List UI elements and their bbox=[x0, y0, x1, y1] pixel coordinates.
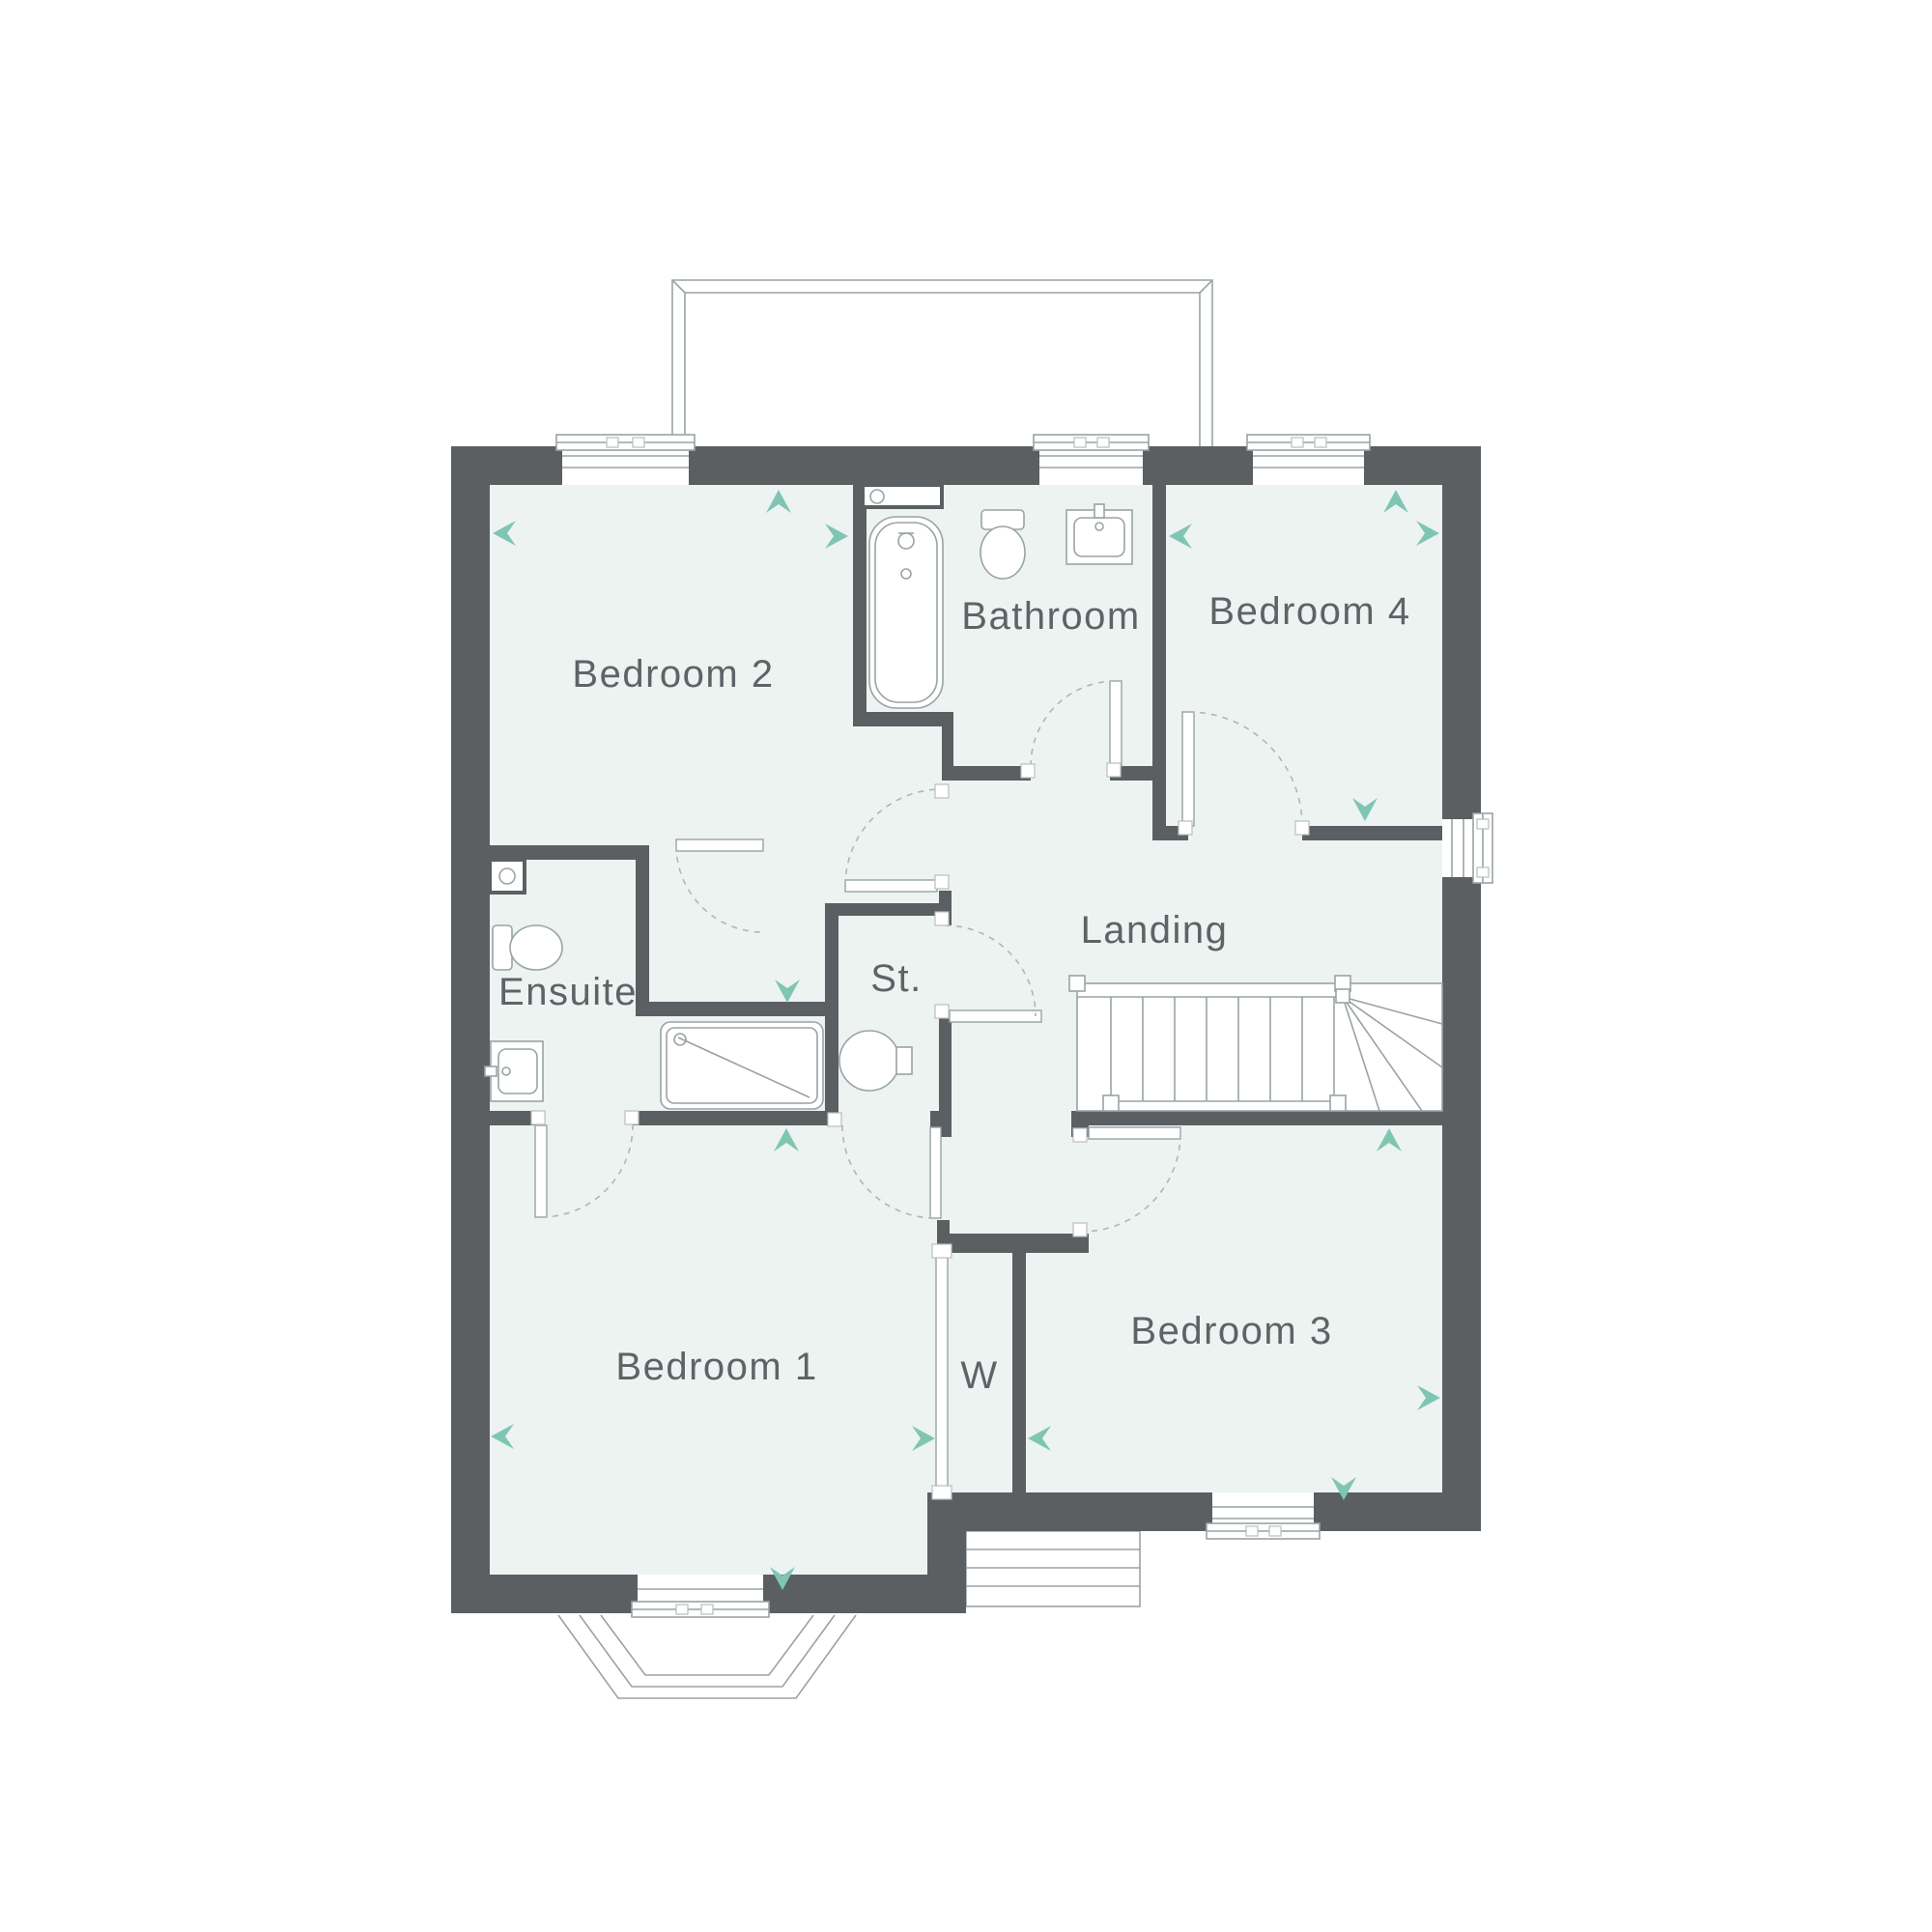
ensuite-sink-icon bbox=[485, 1041, 543, 1101]
room-label-bedroom2: Bedroom 2 bbox=[572, 653, 774, 696]
staircase bbox=[1069, 976, 1442, 1111]
floor-plan: Bedroom 2 Bathroom Bedroom 4 Ensuite St.… bbox=[0, 0, 1932, 1932]
room-label-bathroom: Bathroom bbox=[961, 595, 1140, 638]
room-label-bedroom3: Bedroom 3 bbox=[1130, 1310, 1332, 1352]
window-landing-right bbox=[1442, 813, 1492, 883]
bathroom-boxing bbox=[863, 485, 942, 507]
room-label-landing: Landing bbox=[1081, 909, 1229, 952]
room-label-storage: St. bbox=[870, 957, 922, 1000]
window-bedroom3-bottom bbox=[1207, 1492, 1320, 1539]
bay-window bbox=[558, 1615, 856, 1698]
bathroom-toilet-icon bbox=[980, 510, 1025, 579]
window-bedroom1-bottom bbox=[632, 1575, 769, 1617]
bathroom-sink-icon bbox=[1066, 504, 1132, 564]
floor-plan-svg: Bedroom 2 Bathroom Bedroom 4 Ensuite St.… bbox=[0, 0, 1932, 1932]
window-bathroom-top bbox=[1034, 435, 1149, 485]
bath-tub-icon bbox=[869, 517, 943, 708]
canopy-outline bbox=[672, 280, 1212, 446]
window-bedroom2-top bbox=[556, 435, 695, 485]
room-label-wardrobe: W bbox=[960, 1354, 998, 1397]
shower-tray-icon bbox=[661, 1022, 823, 1109]
window-bedroom4-top bbox=[1247, 435, 1370, 485]
room-label-bedroom1: Bedroom 1 bbox=[615, 1346, 817, 1388]
room-label-bedroom4: Bedroom 4 bbox=[1208, 590, 1410, 633]
room-label-ensuite: Ensuite bbox=[498, 971, 638, 1013]
ensuite-boxing bbox=[490, 860, 525, 893]
ensuite-toilet-icon bbox=[493, 925, 562, 970]
porch-steps bbox=[966, 1531, 1140, 1606]
